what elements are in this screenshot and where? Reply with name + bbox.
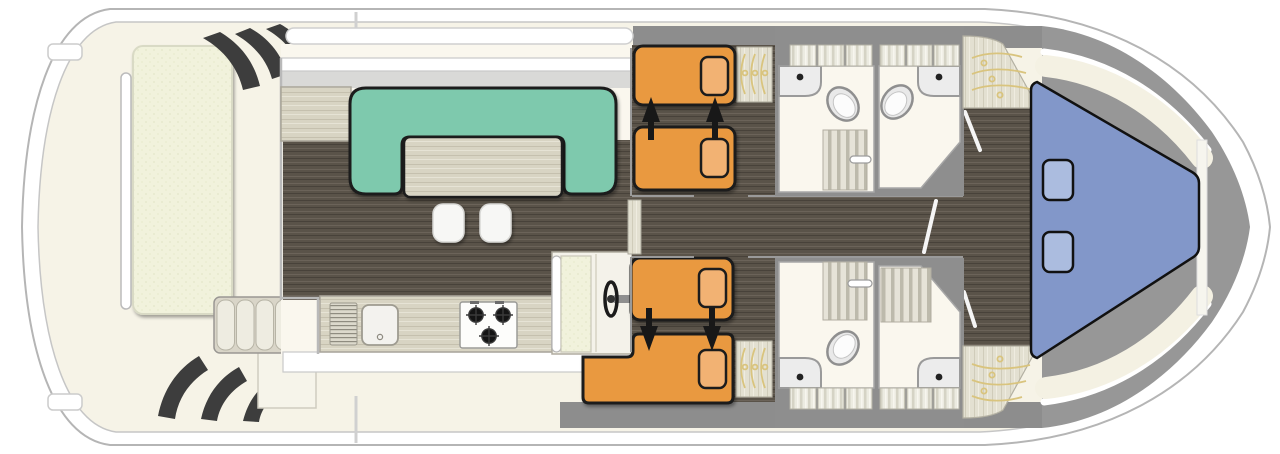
wheel-hub bbox=[607, 295, 615, 303]
faucet bbox=[797, 374, 804, 381]
wash-basin bbox=[779, 66, 821, 96]
windshield bbox=[286, 28, 633, 44]
pillow bbox=[701, 139, 728, 177]
saloon-window-band bbox=[281, 70, 633, 88]
stool bbox=[480, 204, 511, 242]
shower-grate bbox=[823, 262, 867, 320]
galley bbox=[320, 296, 552, 352]
bathroom-port-1 bbox=[779, 66, 874, 192]
helm-seat-back bbox=[552, 256, 561, 352]
pillow bbox=[699, 269, 726, 307]
wash-basin bbox=[918, 66, 960, 96]
saloon-step bbox=[628, 200, 641, 254]
wash-basin bbox=[918, 358, 960, 388]
door-handle bbox=[850, 156, 871, 163]
helm-station bbox=[552, 252, 632, 354]
wash-basin bbox=[779, 358, 821, 388]
boat-floor-plan bbox=[0, 0, 1280, 454]
hob-3-burners bbox=[460, 301, 517, 348]
pillow bbox=[699, 350, 726, 388]
pillow bbox=[1043, 232, 1073, 272]
saloon-top-wall bbox=[281, 58, 633, 71]
sideboard bbox=[281, 87, 351, 141]
dining-table bbox=[404, 137, 562, 197]
floor-plan-canvas bbox=[0, 0, 1280, 454]
pillow bbox=[1043, 160, 1073, 200]
mid-cabin-port bbox=[632, 45, 776, 196]
faucet bbox=[797, 74, 804, 81]
corridor-floor bbox=[632, 196, 963, 257]
shower-grate bbox=[881, 268, 931, 322]
helm-seat-cushion bbox=[561, 256, 591, 352]
drainer bbox=[330, 303, 357, 345]
bow-corridor-floor bbox=[963, 105, 1037, 352]
stern-cleat-bottom bbox=[48, 394, 82, 410]
sun-lounger-pad bbox=[133, 46, 232, 314]
stern-cleat-top bbox=[48, 44, 82, 60]
faucet bbox=[936, 74, 943, 81]
faucet bbox=[936, 374, 943, 381]
pillow bbox=[701, 57, 728, 95]
door-handle bbox=[848, 280, 872, 287]
grab-rail bbox=[121, 73, 131, 309]
stool bbox=[433, 204, 464, 242]
